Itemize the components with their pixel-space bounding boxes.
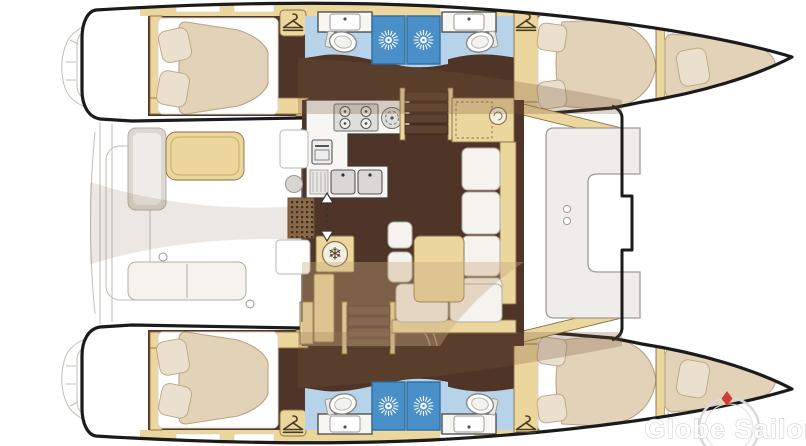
pillow <box>157 26 193 64</box>
cockpit-table <box>166 132 244 180</box>
snowflake-icon: ❄ <box>328 245 342 264</box>
double-sink <box>310 170 382 194</box>
settee-back <box>500 142 516 304</box>
pillow <box>155 69 190 108</box>
helm-seat <box>280 130 308 168</box>
oven-icon <box>312 140 332 164</box>
pillow <box>675 47 711 88</box>
pillow <box>536 22 567 53</box>
washbasin <box>330 14 360 30</box>
forward-cockpit-seat <box>546 128 640 318</box>
deck-ring <box>159 253 167 261</box>
watermark-text: Globe Sailor <box>644 414 806 444</box>
deck-ring <box>246 300 254 308</box>
cockpit-pod <box>286 176 303 193</box>
washbasin <box>454 14 484 30</box>
catamaran-floor-plan: ❄ <box>0 0 806 446</box>
